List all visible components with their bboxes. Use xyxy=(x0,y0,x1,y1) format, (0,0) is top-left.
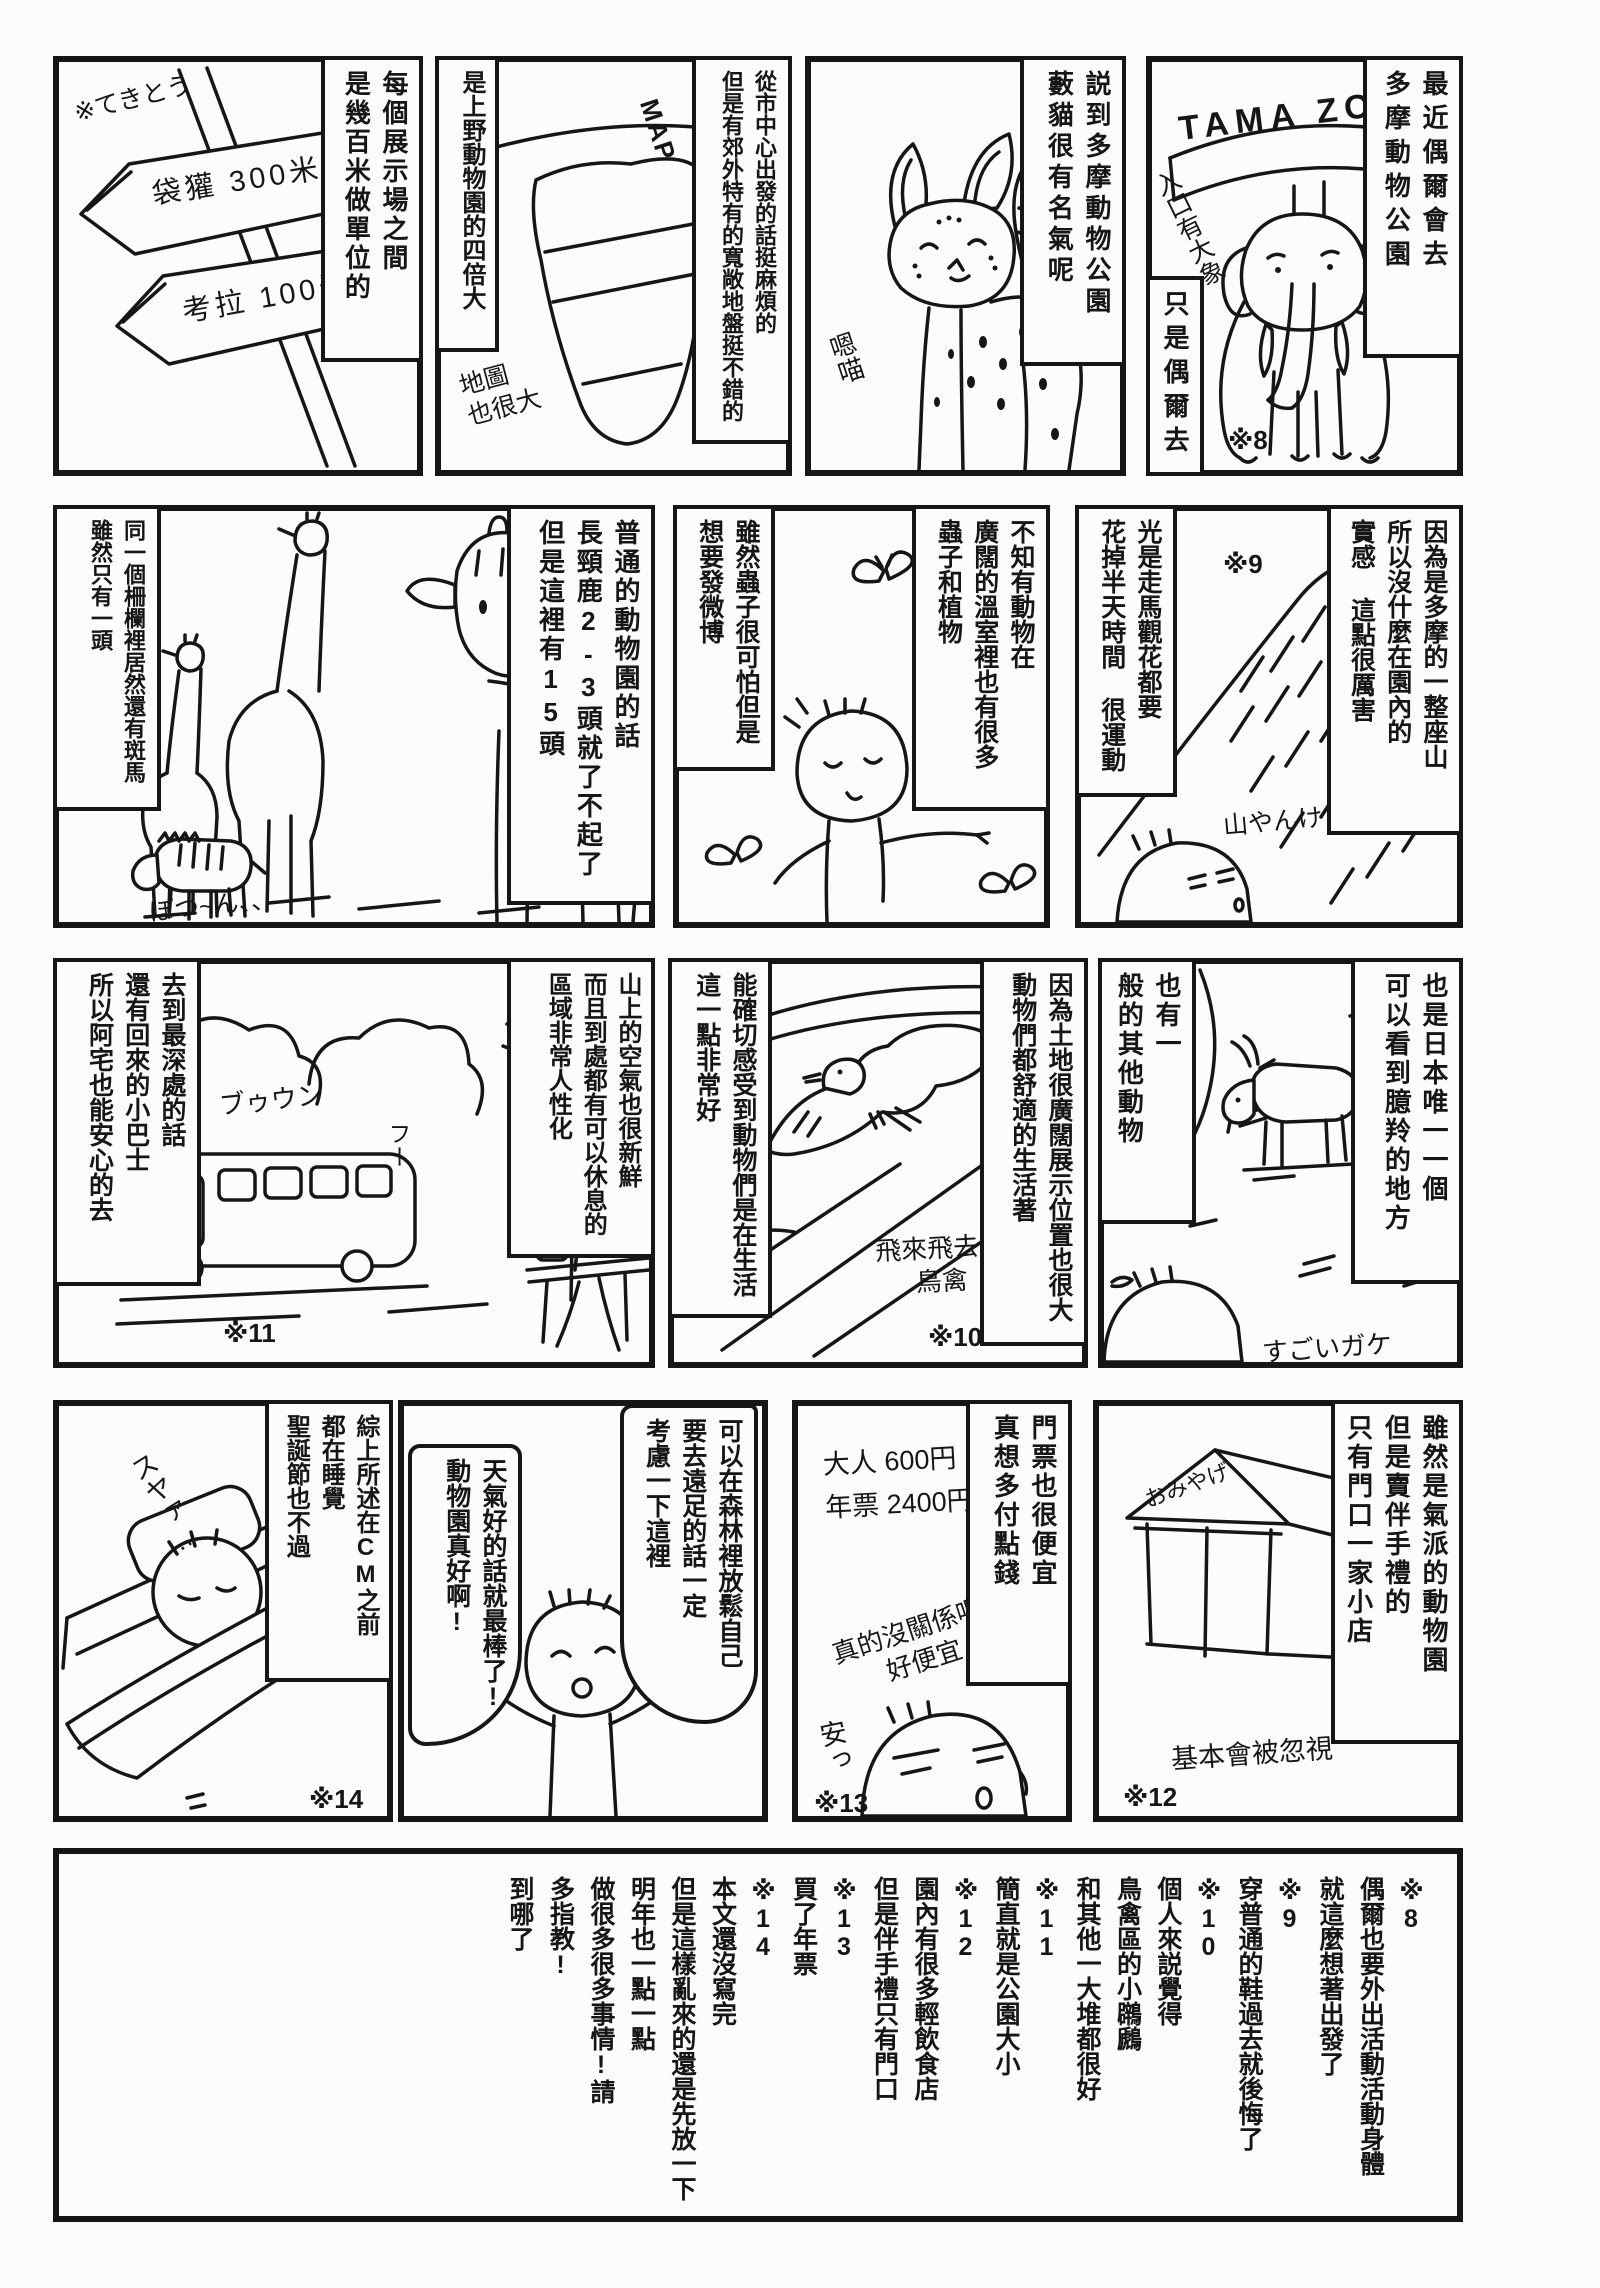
footnote-mark-11: ※11 xyxy=(223,1318,276,1349)
panel-shop: おみやげ 雖然是氣派的動物園 但是賣伴手禮的 只有門口一家小店 基本會被忽視 ※… xyxy=(1093,1400,1463,1822)
panel-signposts: ※てきとう 袋獾 300米 考拉 100米 每個展示場之間 是幾百米做單位的 xyxy=(53,56,423,476)
price-list: 大人 600円 年票 2400円 xyxy=(822,1436,975,1530)
caption-sleep-before-cm: 綜上所述在CM之前 都在睡覺 聖誕節也不過 xyxy=(265,1400,393,1682)
panel-greenhouse: 不知有動物在 廣闊的溫室裡也有很多 蟲子和植物 雖然蟲子很可怕但是 想要發微博 xyxy=(673,505,1050,928)
panel-bus: 山上的空氣也很新鮮 而且到處都有可以休息的 區域非常人性化 去到最深處的話 還有… xyxy=(53,958,655,1368)
caption-cheap-ticket: 門票也很便宜 真想多付點錢 xyxy=(966,1400,1072,1686)
caption-half-day: 光是走馬觀花都要 花掉半天時間 很運動 xyxy=(1075,505,1177,797)
panel-ticket: 門票也很便宜 真想多付點錢 大人 600円 年票 2400円 真的沒關係嗎? 好… xyxy=(792,1400,1072,1822)
caption-only-serow-japan: 也是日本唯一一個 可以看到臆羚的地方 xyxy=(1351,958,1463,1284)
caption-scared-but-post: 雖然蟲子很可怕但是 想要發微博 xyxy=(673,505,775,771)
panel-footnotes: ※8 偶爾也要外出活動活動身體 就這麼想著出發了 ※9 穿普通的鞋過去就後悔了 … xyxy=(53,1848,1463,2222)
caption-whole-mountain: 因為是多摩的一整座山 所以沒什麼在園內的 實感 這點很厲害 xyxy=(1327,505,1463,835)
caption-four-times-ueno: 是上野動物園的四倍大 xyxy=(435,56,499,352)
caption-greenhouse-bugs: 不知有動物在 廣闊的溫室裡也有很多 蟲子和植物 xyxy=(912,505,1050,811)
panel-forest: 可以在森林裡放鬆自己 要去遠足的話一定 考慮一下這裡 天氣好的話就最棒了! 動物… xyxy=(398,1400,768,1822)
footnote-mark-14: ※14 xyxy=(309,1784,363,1815)
panel-giraffes: 普通的動物園的話 長頸鹿2-3頭就了不起了 但是這裡有15頭 同一個柵欄裡居然還… xyxy=(53,505,655,928)
bubble-consider-hiking: 可以在森林裡放鬆自己 要去遠足的話一定 考慮一下這裡 xyxy=(620,1404,758,1724)
caption-fresh-air: 山上的空氣也很新鮮 而且到處都有可以休息的 區域非常人性化 xyxy=(507,958,655,1258)
caption-return-bus: 去到最深處的話 還有回來的小巴士 所以阿宅也能安心的去 xyxy=(53,958,201,1286)
caption-other-animals: 也有一 般的其他動物 xyxy=(1098,958,1196,1224)
comic-page: TAMA ZOO 入口有大象 最近偶爾會去 多摩動物公園 只是偶爾去 ※8 xyxy=(0,0,1600,2288)
bubble-zoo-is-great: 天氣好的話就最棒了! 動物園真好啊! xyxy=(408,1444,522,1746)
panel-sleep: 綜上所述在CM之前 都在睡覺 聖誕節也不過 スヤァ… ※14 xyxy=(53,1400,393,1822)
caption-spacious-exhibits: 因為土地很廣闊展示位置也很大 動物們都舒適的生活著 xyxy=(980,958,1088,1346)
panel-serow: 也是日本唯一一個 可以看到臆羚的地方 也有一 般的其他動物 すごいガケ xyxy=(1098,958,1463,1368)
panel-mountain: 因為是多摩的一整座山 所以沒什麼在園內的 實感 這點很厲害 光是走馬觀花都要 花… xyxy=(1075,505,1463,928)
caption-hundreds-meters: 每個展示場之間 是幾百米做單位的 xyxy=(321,56,423,362)
caption-zebra-same-pen: 同一個柵欄裡居然還有斑馬 雖然只有一頭 xyxy=(53,505,161,811)
sigh-note: フー xyxy=(383,1122,412,1168)
caption-fifteen-giraffes: 普通的動物園的話 長頸鹿2-3頭就了不起了 但是這裡有15頭 xyxy=(507,505,655,905)
caption-serval-famous: 説到多摩動物公園 藪貓很有名氣呢 xyxy=(1020,56,1126,366)
footnote-mark-8: ※8 xyxy=(1228,425,1268,456)
footnote-mark-13: ※13 xyxy=(814,1788,868,1819)
footnote-mark-10: ※10 xyxy=(928,1322,982,1353)
caption-animals-living: 能確切感受到動物們是在生活 這一點非常好 xyxy=(668,958,772,1318)
footnote-mark-12: ※12 xyxy=(1123,1782,1177,1813)
panel-tamazoo-entrance: TAMA ZOO 入口有大象 最近偶爾會去 多摩動物公園 只是偶爾去 ※8 xyxy=(1146,56,1463,476)
panel-map: MAP 地圖 也很大 從市中心出發的話挺麻煩的 但是有郊外特有的寬敞地盤挺不錯的… xyxy=(435,56,792,476)
panel-birds: 因為土地很廣闊展示位置也很大 動物們都舒適的生活著 能確切感受到動物們是在生活 … xyxy=(668,958,1088,1368)
caption-access: 從市中心出發的話挺麻煩的 但是有郊外特有的寬敞地盤挺不錯的 xyxy=(692,56,792,444)
caption-one-small-shop: 雖然是氣派的動物園 但是賣伴手禮的 只有門口一家小店 xyxy=(1331,1400,1463,1744)
caption-only-sometimes: 只是偶爾去 xyxy=(1146,276,1204,476)
caption-recently-visit: 最近偶爾會去 多摩動物公園 xyxy=(1363,56,1463,358)
footnote-mark-9: ※9 xyxy=(1223,549,1263,580)
footnotes-text: ※8 偶爾也要外出活動活動身體 就這麼想著出發了 ※9 穿普通的鞋過去就後悔了 … xyxy=(500,1876,1432,2202)
panel-serval: 説到多摩動物公園 藪貓很有名氣呢 嗯喵 xyxy=(805,56,1126,476)
